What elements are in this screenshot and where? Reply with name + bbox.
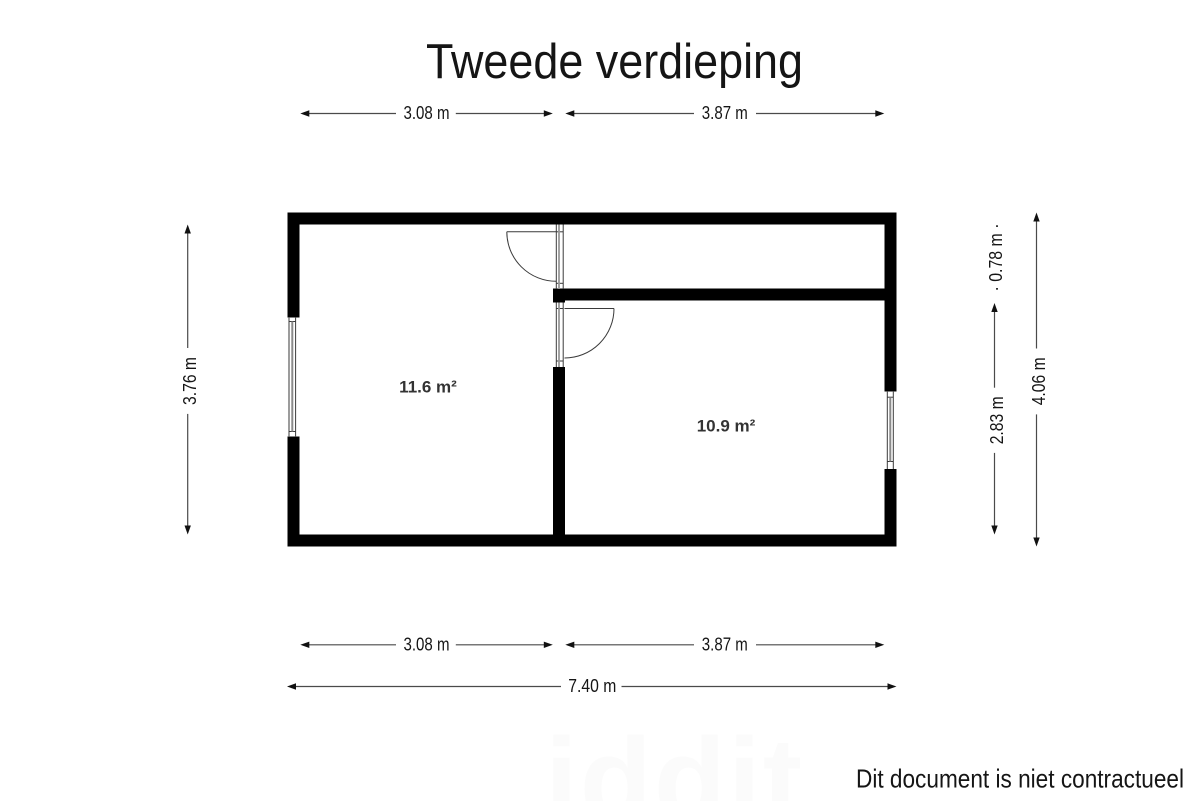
svg-text:7.40 m: 7.40 m [568, 676, 616, 696]
svg-text:4.06 m: 4.06 m [1029, 357, 1049, 405]
svg-text:11.6 m²: 11.6 m² [399, 378, 457, 397]
svg-text:3.87 m: 3.87 m [702, 634, 748, 654]
svg-text:3.87 m: 3.87 m [702, 103, 748, 123]
svg-text:3.08 m: 3.08 m [404, 634, 450, 654]
svg-text:Tweede verdieping: Tweede verdieping [426, 34, 803, 89]
svg-text:iddit: iddit [545, 714, 804, 801]
svg-text:· 0.78 m ·: · 0.78 m · [986, 224, 1006, 292]
svg-text:2.83 m: 2.83 m [987, 396, 1007, 444]
svg-text:10.9 m²: 10.9 m² [697, 417, 756, 436]
svg-text:Dit document is niet contractu: Dit document is niet contractueel [856, 764, 1184, 794]
svg-text:3.76 m: 3.76 m [180, 357, 200, 405]
svg-text:3.08 m: 3.08 m [404, 103, 450, 123]
